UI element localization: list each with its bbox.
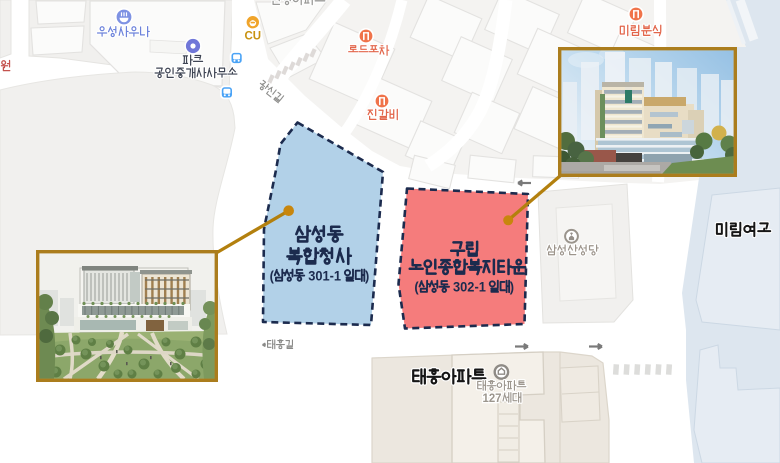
svg-text:301-1: 301-1 [308, 269, 341, 284]
svg-text:CU: CU [244, 31, 261, 43]
svg-text:(: ( [414, 280, 419, 295]
svg-text:): ) [510, 280, 514, 295]
svg-text:(: ( [270, 269, 275, 284]
svg-text:127: 127 [483, 393, 502, 405]
svg-text:302-1: 302-1 [453, 280, 486, 295]
svg-text:): ) [365, 269, 369, 284]
